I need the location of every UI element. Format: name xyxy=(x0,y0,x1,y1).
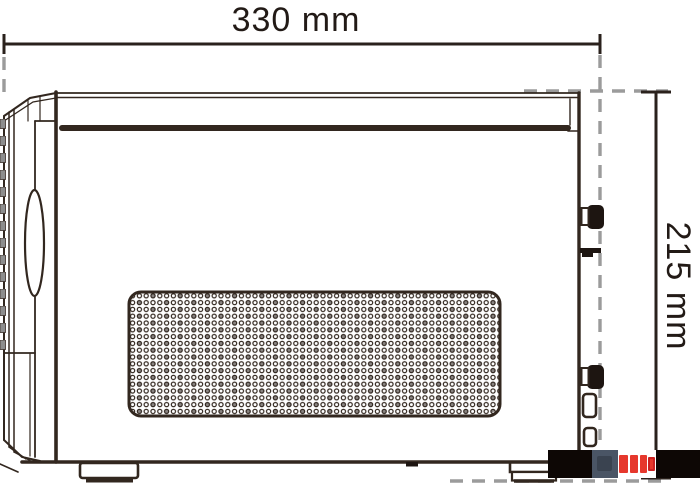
case-drawing-svg xyxy=(0,0,700,485)
rear-thumbscrew-top xyxy=(587,205,604,229)
rear-port-upper xyxy=(583,394,596,417)
watermark-logo xyxy=(548,450,700,478)
bezel-ground-slant xyxy=(0,464,18,472)
front-vent-slats xyxy=(0,117,6,353)
front-bezel xyxy=(0,93,56,472)
mesh-panel-texture xyxy=(131,294,498,414)
dimension-height-label: 215 mm xyxy=(661,207,695,365)
rear-latch-tab xyxy=(582,253,593,257)
technical-drawing-canvas: 330 mm 215 mm xyxy=(0,0,700,485)
watermark-black-left xyxy=(548,450,592,478)
bottom-details xyxy=(80,462,557,481)
rear-thumbscrew-bottom-slot xyxy=(582,368,589,385)
front-foot xyxy=(80,463,138,478)
watermark-black-right xyxy=(656,450,700,478)
rear-thumbscrew-bottom xyxy=(587,365,604,389)
watermark-red-glyphs xyxy=(618,450,656,478)
rear-thumbscrew-top-slot xyxy=(582,208,589,225)
bottom-bump xyxy=(406,462,418,467)
rear-latch-bar xyxy=(580,248,601,253)
front-handle-ellipse xyxy=(25,190,44,296)
mesh-panel xyxy=(129,292,500,416)
dimension-width-label: 330 mm xyxy=(180,3,412,37)
rear-port-lower xyxy=(584,428,596,446)
watermark-slate-square xyxy=(592,450,618,478)
bezel-bottom-slant-3 xyxy=(14,452,30,461)
